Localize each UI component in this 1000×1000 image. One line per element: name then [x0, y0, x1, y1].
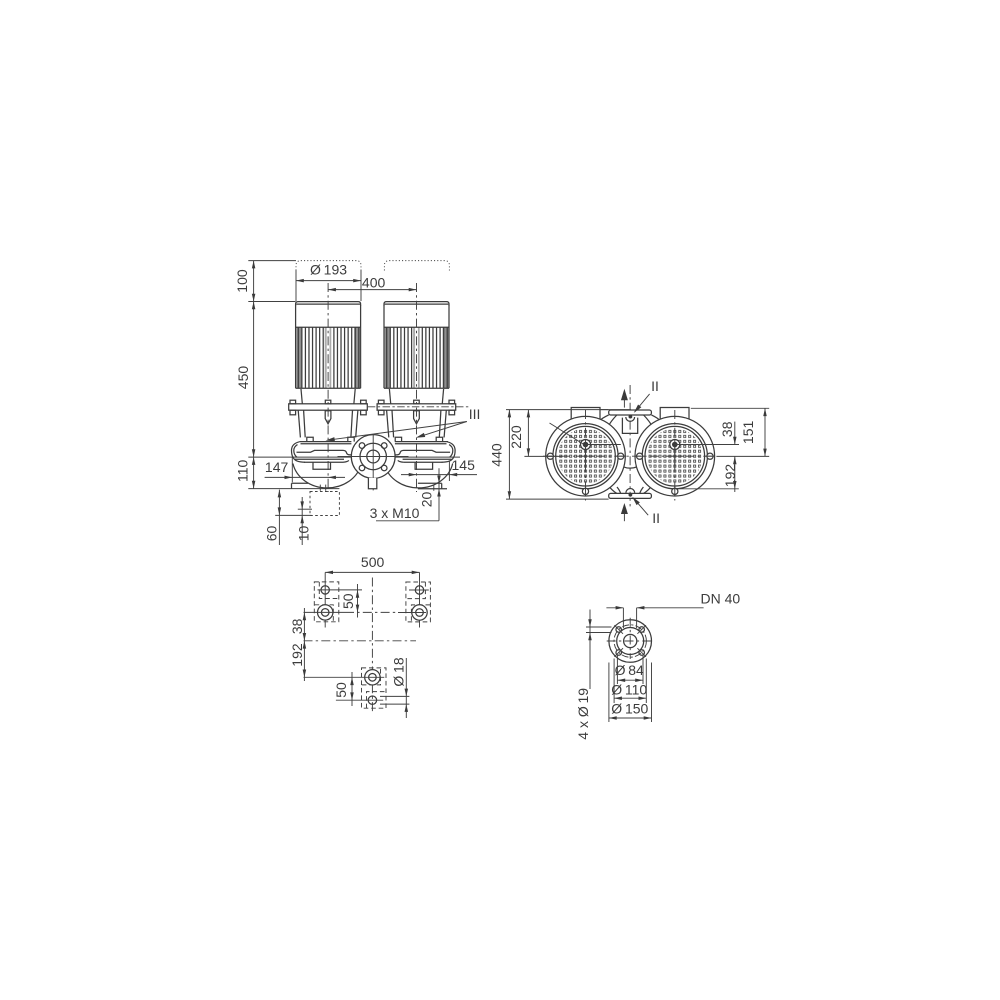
svg-text:100: 100	[234, 269, 250, 293]
svg-text:50: 50	[333, 682, 349, 698]
svg-text:10: 10	[295, 526, 311, 542]
svg-text:500: 500	[361, 554, 385, 570]
svg-text:110: 110	[235, 459, 251, 482]
svg-text:145: 145	[452, 457, 476, 473]
svg-text:220: 220	[508, 425, 524, 449]
svg-text:192: 192	[289, 643, 305, 667]
svg-text:440: 440	[489, 443, 505, 467]
svg-text:Ø 18: Ø 18	[391, 657, 407, 686]
svg-text:III: III	[469, 406, 481, 422]
svg-text:II: II	[651, 378, 659, 394]
svg-text:Ø 84: Ø 84	[615, 662, 644, 678]
svg-text:38: 38	[719, 421, 735, 437]
svg-text:3 x M10: 3 x M10	[370, 505, 420, 521]
svg-text:Ø 150: Ø 150	[611, 701, 648, 717]
svg-text:Ø 110: Ø 110	[611, 681, 647, 697]
svg-text:Ø 193: Ø 193	[310, 261, 347, 277]
svg-text:38: 38	[289, 618, 305, 634]
svg-text:450: 450	[235, 366, 251, 390]
svg-text:50: 50	[340, 593, 356, 609]
svg-text:60: 60	[264, 526, 280, 542]
svg-text:151: 151	[740, 421, 756, 445]
svg-text:II: II	[652, 510, 660, 526]
svg-text:400: 400	[362, 275, 386, 291]
svg-text:4 x Ø 19: 4 x Ø 19	[575, 688, 591, 740]
svg-text:20: 20	[419, 492, 435, 508]
svg-text:DN 40: DN 40	[700, 591, 740, 607]
svg-text:192: 192	[722, 464, 738, 488]
svg-text:147: 147	[265, 459, 289, 475]
